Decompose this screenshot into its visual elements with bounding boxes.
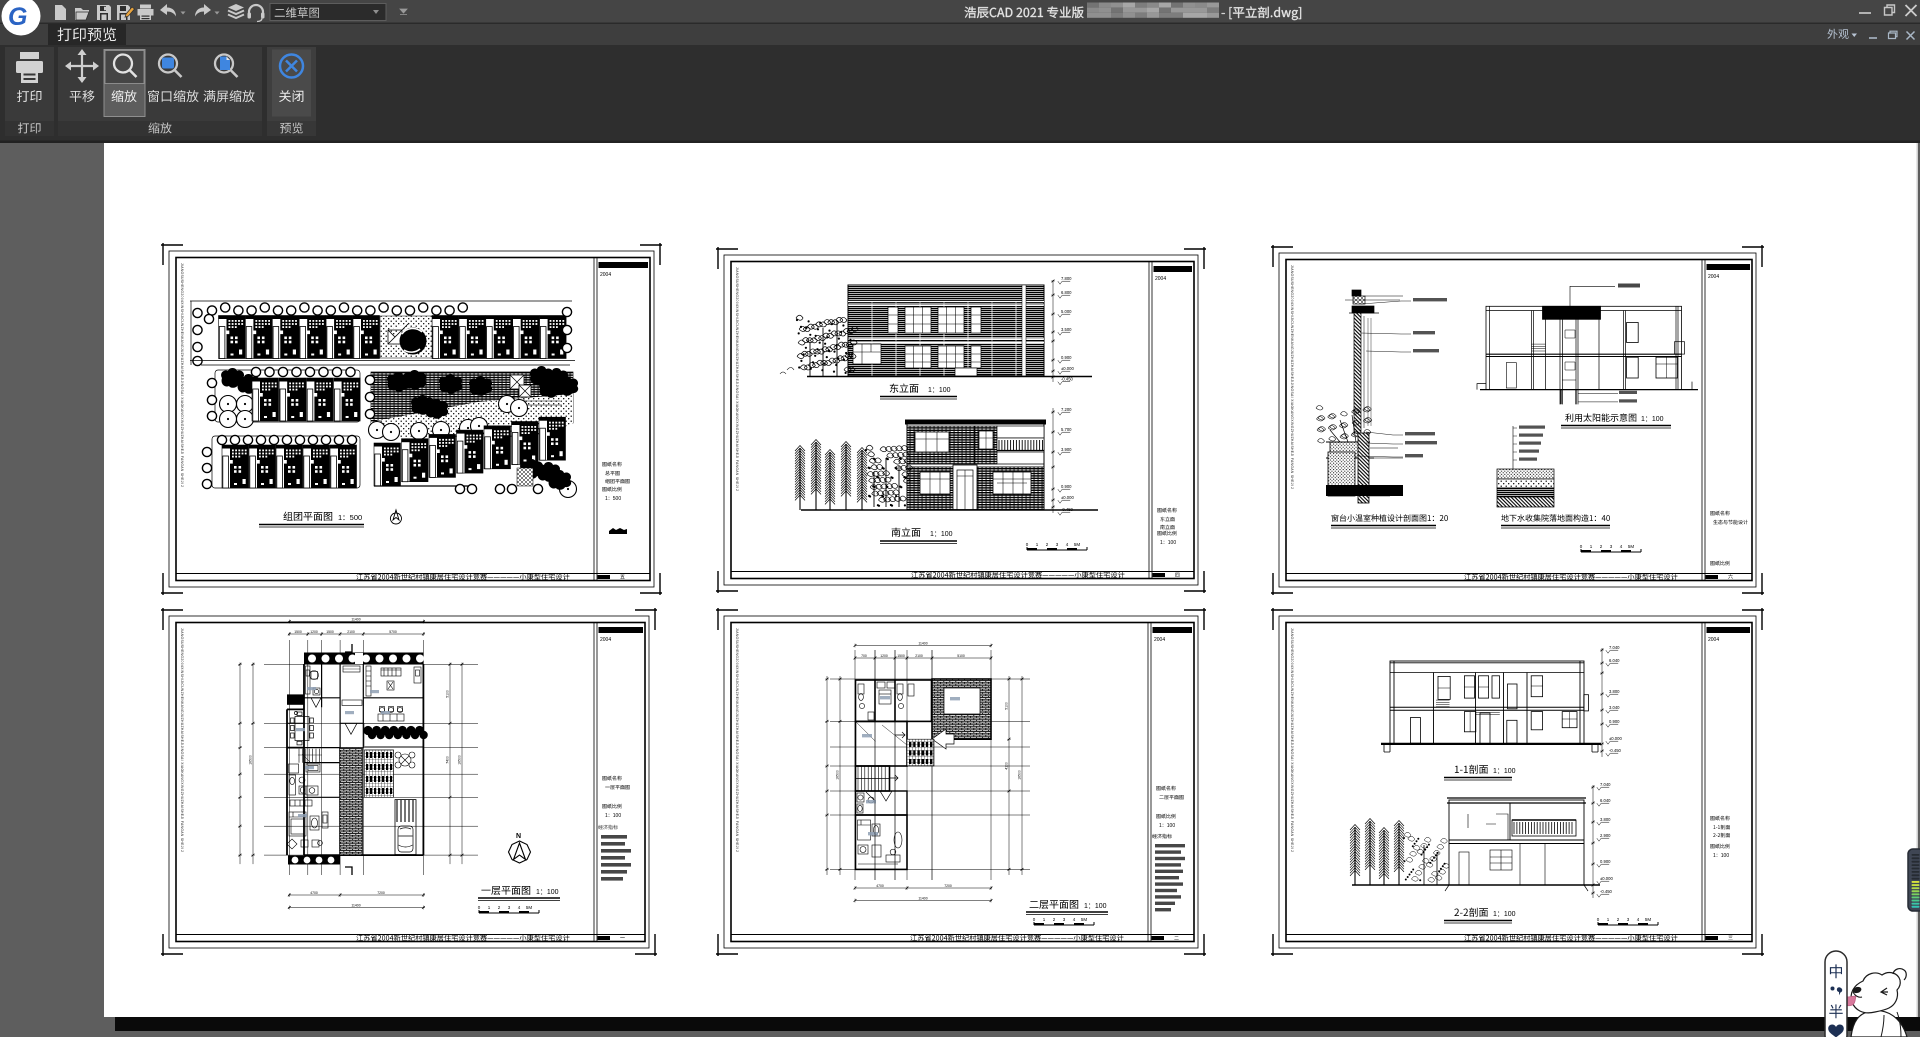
svg-text:-0.450: -0.450 [1609,748,1622,753]
svg-text:11400: 11400 [351,903,360,907]
svg-text:5100: 5100 [446,690,450,698]
svg-text:5M: 5M [1628,544,1635,549]
svg-text:5100: 5100 [957,654,965,658]
svg-text:16500: 16500 [458,755,462,765]
svg-text:7.040: 7.040 [1600,782,1611,787]
svg-text:±0.000: ±0.000 [1061,495,1074,500]
svg-text:4700: 4700 [310,891,318,895]
svg-text:1：100: 1：100 [1160,540,1176,546]
svg-text:JIANGSUSHENG2004XINSHIJICUNZHE: JIANGSUSHENG2004XINSHIJICUNZHENKANGJUZHU… [1290,265,1294,489]
svg-text:3.500: 3.500 [1061,327,1072,332]
svg-text:4700: 4700 [876,884,884,888]
svg-text:JIANGSUSHENG2004XINSHIJICUNZHE: JIANGSUSHENG2004XINSHIJICUNZHENKANGJUZHU… [180,628,184,852]
svg-text:5M: 5M [1645,917,1652,922]
svg-text:16500: 16500 [836,770,840,780]
svg-text:2004: 2004 [600,637,611,643]
svg-text:JIANGSUSHENG2004XINSHIJICUNZHE: JIANGSUSHENG2004XINSHIJICUNZHENKANGJUZHU… [735,267,739,491]
svg-text:5100: 5100 [1005,702,1009,710]
svg-text:2004: 2004 [1708,274,1719,280]
svg-text:7200: 7200 [944,884,952,888]
svg-text:1200: 1200 [310,630,318,634]
svg-text:2004: 2004 [1154,637,1165,643]
svg-text:3.040: 3.040 [1609,705,1620,710]
svg-text:JIANGSUSHENG2004XINSHIJICUNZHE: JIANGSUSHENG2004XINSHIJICUNZHENKANGJUZHU… [735,628,739,852]
svg-text:±0.000: ±0.000 [1061,366,1074,371]
svg-text:N: N [516,833,521,840]
svg-text:1：100: 1：100 [1713,853,1729,859]
svg-text:0.900: 0.900 [1609,719,1620,724]
svg-text:2004: 2004 [1708,637,1719,643]
svg-text:-0.450: -0.450 [1600,889,1613,894]
svg-text:1：500: 1：500 [338,513,362,522]
svg-text:0.900: 0.900 [1600,859,1611,864]
svg-text:±0.000: ±0.000 [1600,876,1613,881]
svg-text:1500: 1500 [326,630,334,634]
svg-text:3.800: 3.800 [1600,817,1611,822]
svg-text:1：100: 1：100 [930,531,953,538]
svg-text:1：100: 1：100 [1493,768,1516,775]
svg-text:1：100: 1：100 [1084,903,1107,910]
svg-text:6.040: 6.040 [1609,658,1620,663]
svg-text:0.900: 0.900 [1061,484,1072,489]
svg-text:-0.450: -0.450 [1061,377,1074,382]
svg-text:3.900: 3.900 [1061,447,1072,452]
svg-text:2100: 2100 [347,630,355,634]
svg-text:1500: 1500 [897,654,905,658]
svg-text:7.800: 7.800 [1061,276,1072,281]
svg-text:5.700: 5.700 [1061,427,1072,432]
svg-text:1：100: 1：100 [1641,416,1664,423]
svg-text:1：500: 1：500 [605,496,621,502]
svg-text:2100: 2100 [915,654,923,658]
svg-text:11400: 11400 [351,617,360,621]
svg-text:0.900: 0.900 [1061,355,1072,360]
svg-text:JIANGSUSHENG2004XINSHIJICUNZHE: JIANGSUSHENG2004XINSHIJICUNZHENKANGJUZHU… [180,263,184,487]
svg-text:2004: 2004 [600,272,611,278]
svg-text:11400: 11400 [918,896,927,900]
svg-text:7400: 7400 [446,756,450,764]
svg-text:16500: 16500 [1018,770,1022,780]
svg-text:7.200: 7.200 [1061,407,1072,412]
svg-text:5700: 5700 [389,630,397,634]
svg-text:5M: 5M [1074,542,1081,547]
svg-text:G: G [8,3,27,31]
svg-text:7.040: 7.040 [1609,645,1620,650]
svg-text:1：100: 1：100 [536,889,559,896]
svg-text:5M: 5M [1081,917,1088,922]
svg-text:1：100: 1：100 [1493,911,1516,918]
svg-text:2.900: 2.900 [1600,833,1611,838]
svg-text:6.800: 6.800 [1061,290,1072,295]
svg-text:5.000: 5.000 [1061,309,1072,314]
svg-text:5M: 5M [526,905,533,910]
svg-text:JIANGSUSHENG2004XINSHIJICUNZHE: JIANGSUSHENG2004XINSHIJICUNZHENKANGJUZHU… [1290,628,1294,852]
svg-text:11400: 11400 [918,641,927,645]
svg-text:1：100: 1：100 [605,813,621,819]
svg-text:700: 700 [861,654,867,658]
svg-text:2004: 2004 [1155,276,1166,282]
svg-text:7200: 7200 [377,891,385,895]
svg-text:1：100: 1：100 [1159,823,1175,829]
svg-text:16500: 16500 [249,755,253,765]
svg-text:-0.450: -0.450 [1061,507,1074,512]
svg-text:4100: 4100 [1005,762,1009,770]
svg-text:3.800: 3.800 [1609,689,1620,694]
svg-text:1：100: 1：100 [928,387,951,394]
svg-text:6.040: 6.040 [1600,798,1611,803]
svg-text:±0.000: ±0.000 [1609,736,1622,741]
svg-text:1200: 1200 [880,654,888,658]
svg-text:1500: 1500 [294,630,302,634]
